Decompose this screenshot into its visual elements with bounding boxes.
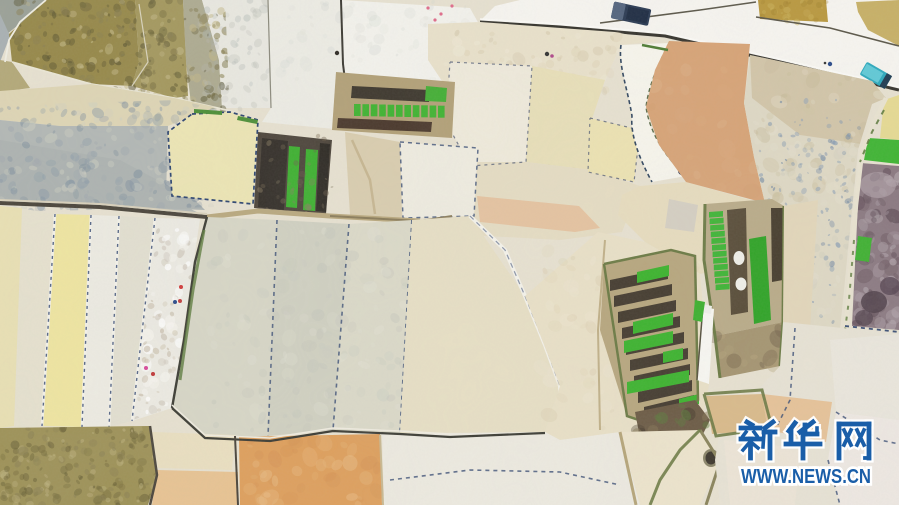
- svg-text:WWW.NEWS.CN: WWW.NEWS.CN: [741, 466, 871, 488]
